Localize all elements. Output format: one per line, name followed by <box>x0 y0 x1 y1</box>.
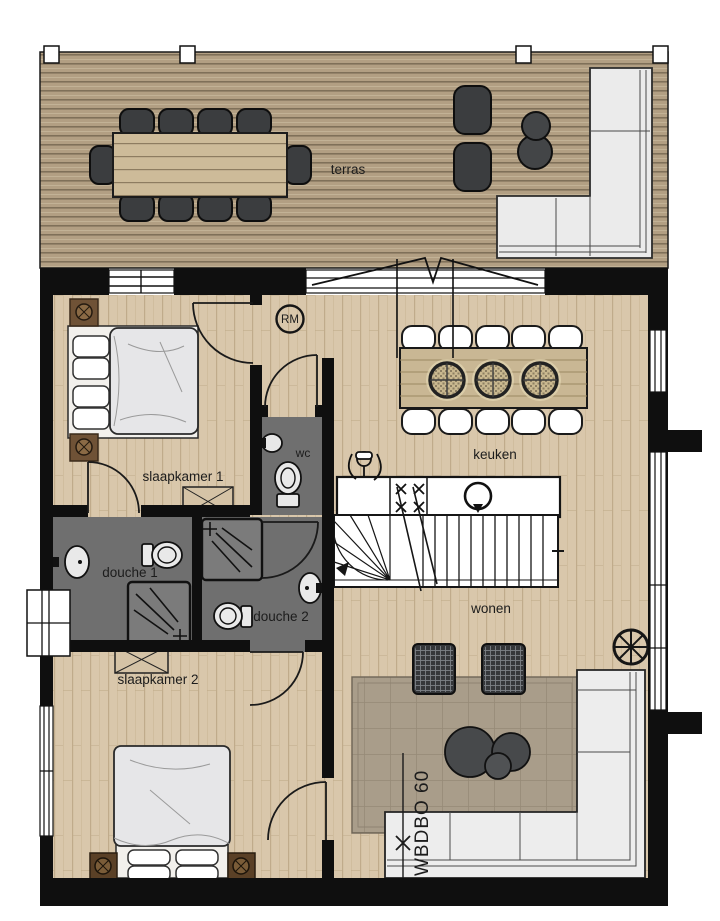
duvet-1 <box>110 328 198 434</box>
sink-2 <box>299 573 322 603</box>
fire-rating-label: WBDBO 60 <box>412 770 433 876</box>
bed-1 <box>68 326 198 438</box>
terrace: terras <box>40 46 668 268</box>
window-top-left <box>109 270 174 293</box>
room-label-douche2: douche 2 <box>253 609 309 624</box>
window-left-bedroom2 <box>40 706 53 836</box>
floor-plan-drawing: terras <box>0 0 720 921</box>
wc-toilet <box>275 462 301 507</box>
pendant-lamps <box>426 359 561 401</box>
window-right-lower <box>650 452 666 710</box>
room-label-keuken: keuken <box>473 447 517 462</box>
wc-sink <box>262 434 282 452</box>
room-label-slaapkamer2: slaapkamer 2 <box>117 672 198 687</box>
ceiling-fan-icon <box>614 630 648 664</box>
shower-2 <box>202 519 262 580</box>
room-label-slaapkamer1: slaapkamer 1 <box>142 469 223 484</box>
room-label-wc: wc <box>295 446 311 460</box>
bed-2 <box>114 746 230 881</box>
room-label-douche1: douche 1 <box>102 565 158 580</box>
floor-plan-page: terras <box>0 0 720 921</box>
terrace-dining-table <box>113 133 287 197</box>
window-right-upper <box>650 330 666 392</box>
terrace-side-tables <box>518 112 552 169</box>
room-label-wonen: wonen <box>470 601 511 616</box>
toilet-2 <box>214 603 252 629</box>
window-left-shower <box>27 590 70 656</box>
smoke-detector-label: RM <box>281 314 299 326</box>
shower-1 <box>128 582 190 644</box>
room-label-terras: terras <box>331 162 366 177</box>
